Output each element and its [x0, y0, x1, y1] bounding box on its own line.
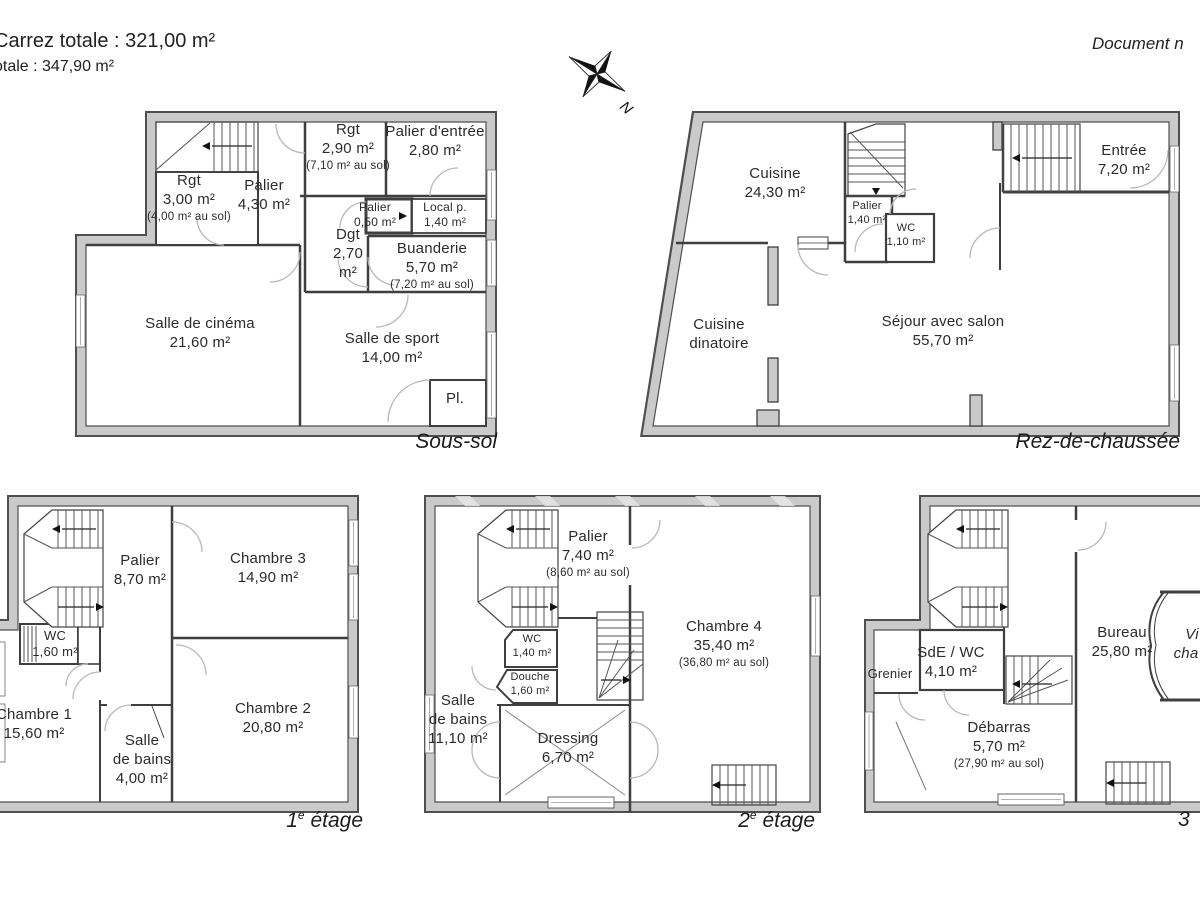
room-label-entree: Entrée7,20 m²: [1064, 142, 1184, 180]
room-label-chambre3: Chambre 314,90 m²: [188, 550, 348, 588]
room-label-buanderie: Buanderie5,70 m²(7,20 m² au sol): [372, 240, 492, 292]
total-area: otale : 347,90 m²: [0, 58, 114, 76]
room-label-salle-sport: Salle de sport14,00 m²: [312, 330, 472, 368]
room-label-sdb-e1: Sallede bains4,00 m²: [102, 732, 182, 788]
room-label-sdb-e2: Sallede bains11,10 m²: [408, 692, 508, 748]
room-label-cuisine-dinatoire: Cuisinedinatoire: [659, 316, 779, 354]
floorplan-document: N: [0, 0, 1200, 900]
room-label-wc-rdc: WC1,10 m²: [876, 222, 936, 250]
floor-label-etage3: 3: [1178, 808, 1200, 832]
etage1-staircase: [24, 510, 103, 627]
room-label-chambre4: Chambre 435,40 m²(36,80 m² au sol): [644, 618, 804, 670]
room-label-palier-e2: Palier7,40 m²(8,60 m² au sol): [543, 528, 633, 580]
room-label-cuisine: Cuisine24,30 m²: [715, 165, 835, 203]
room-label-palier-e1: Palier8,70 m²: [95, 552, 185, 590]
floor-label-etage1: 1e étage: [243, 808, 363, 833]
floor-label-rdc: Rez-de-chaussée: [970, 430, 1180, 454]
room-label-placard: Pl.: [435, 390, 475, 409]
room-label-salle-cinema: Salle de cinéma21,60 m²: [120, 315, 280, 353]
room-label-chambre2: Chambre 220,80 m²: [193, 700, 353, 738]
room-label-sejour: Séjour avec salon55,70 m²: [843, 313, 1043, 351]
room-label-vide-line1: Vi: [1170, 626, 1200, 645]
compass-rose: N: [555, 34, 640, 119]
room-label-debarras: Débarras5,70 m²(27,90 m² au sol): [919, 719, 1079, 771]
document-note: Document n: [1092, 34, 1184, 54]
room-label-dressing: Dressing6,70 m²: [508, 730, 628, 768]
room-label-palier-ss: Palier4,30 m²: [214, 177, 314, 215]
compass-north-text: N: [616, 98, 636, 118]
room-label-chambre1: Chambre 115,60 m²: [0, 706, 101, 744]
floor-label-etage2: 2e étage: [695, 808, 815, 833]
carrez-total-area: Carrez totale : 321,00 m²: [0, 30, 215, 53]
room-label-wc-e2: WC1,40 m²: [502, 633, 562, 661]
room-label-vide-line2: cha: [1162, 645, 1200, 664]
room-label-dgt: Dgt2,70 m²: [326, 226, 370, 282]
room-label-local-p: Local p.1,40 m²: [405, 200, 485, 230]
room-label-sde-wc: SdE / WC4,10 m²: [901, 644, 1001, 682]
room-label-palier-entree: Palier d'entrée2,80 m²: [372, 123, 498, 161]
floor-label-sous-sol: Sous-sol: [377, 430, 497, 454]
room-label-wc-e1: WC1,60 m²: [15, 628, 95, 661]
